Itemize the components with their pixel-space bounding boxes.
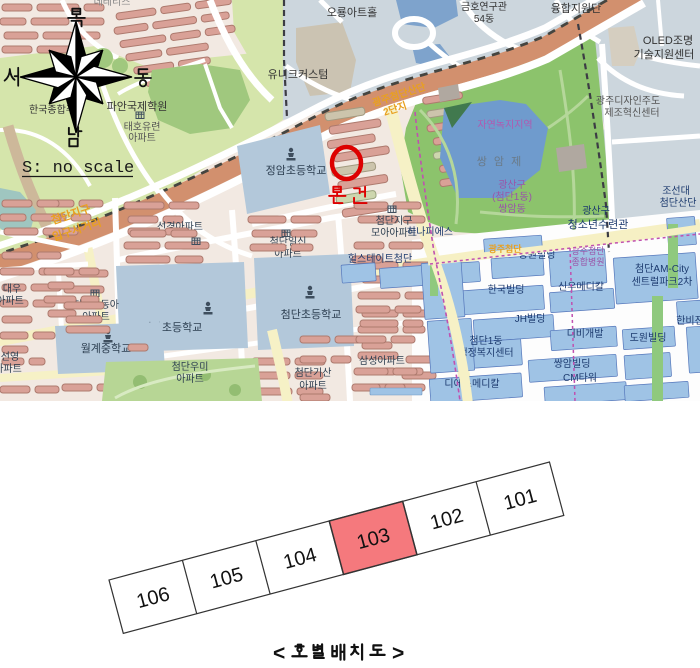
- svg-text:융합지원단: 융합지원단: [551, 2, 602, 15]
- svg-text:아파트: 아파트: [0, 295, 24, 307]
- svg-text:종합병원: 종합병원: [571, 257, 604, 267]
- svg-text:광산구: 광산구: [582, 205, 610, 217]
- svg-text:선영: 선영: [1, 351, 19, 363]
- svg-text:아파트: 아파트: [299, 380, 327, 392]
- svg-text:첨단지구: 첨단지구: [376, 215, 413, 227]
- svg-text:첨단초등학교: 첨단초등학교: [281, 308, 342, 321]
- svg-text:광주첨단: 광주첨단: [488, 243, 522, 254]
- svg-text:CM타워: CM타워: [563, 371, 597, 384]
- svg-text:오룡아트홀: 오룡아트홀: [327, 6, 378, 19]
- svg-text:광산구: 광산구: [498, 179, 526, 191]
- svg-text:첨단AM-City: 첨단AM-City: [635, 263, 689, 275]
- svg-text:도원빌딩: 도원빌딩: [630, 332, 667, 344]
- svg-text:S: no scale: S: no scale: [22, 159, 134, 178]
- svg-text:>: >: [392, 642, 404, 665]
- svg-text:아파트: 아파트: [0, 363, 22, 375]
- svg-text:(첨단1동): (첨단1동): [492, 191, 532, 203]
- svg-text:OLED조명: OLED조명: [643, 34, 693, 47]
- svg-text:한비젼: 한비젼: [676, 315, 700, 327]
- svg-text:첨단기산: 첨단기산: [295, 367, 332, 379]
- svg-text:JH빌딩: JH빌딩: [515, 313, 546, 325]
- svg-text:힐스테이트첨단: 힐스테이트첨단: [348, 252, 412, 265]
- svg-text:쌍 암 제: 쌍 암 제: [477, 155, 523, 168]
- svg-text:신우메디칼: 신우메디칼: [558, 280, 604, 293]
- svg-text:디에스메디칼: 디에스메디칼: [444, 377, 499, 390]
- svg-text:대우: 대우: [3, 283, 21, 295]
- svg-text:쌍암빌딩: 쌍암빌딩: [554, 358, 591, 370]
- svg-text:삼성아파트: 삼성아파트: [359, 355, 405, 367]
- svg-text:유니크커스텀: 유니크커스텀: [268, 68, 329, 81]
- svg-text:쌍암동: 쌍암동: [498, 203, 526, 215]
- svg-text:제조혁신센터: 제조혁신센터: [604, 107, 659, 119]
- svg-text:데레리즈: 데레리즈: [94, 0, 131, 8]
- svg-text:청소년수련관: 청소년수련관: [568, 218, 629, 231]
- svg-text:센트럴파크2차: 센트럴파크2차: [632, 275, 693, 288]
- svg-text:기술지원센터: 기술지원센터: [634, 48, 695, 61]
- svg-text:한국빌딩: 한국빌딩: [488, 284, 525, 296]
- svg-text:금호연구관: 금호연구관: [461, 1, 507, 13]
- svg-text:첨단우미: 첨단우미: [172, 361, 209, 373]
- svg-text:광주디자인주도: 광주디자인주도: [596, 95, 660, 107]
- svg-text:조선대: 조선대: [662, 185, 690, 197]
- svg-text:아파트: 아파트: [128, 132, 156, 144]
- svg-text:첨단1동: 첨단1동: [469, 335, 502, 347]
- svg-text:54동: 54동: [474, 13, 494, 25]
- svg-text:정암초등학교: 정암초등학교: [266, 164, 327, 177]
- svg-text:첨단산단: 첨단산단: [660, 197, 697, 209]
- svg-text:아파트: 아파트: [176, 373, 204, 385]
- svg-text:태호유련: 태호유련: [124, 121, 161, 133]
- svg-text:월계중학교: 월계중학교: [81, 342, 132, 355]
- svg-text:<: <: [273, 642, 285, 665]
- svg-text:자연녹지지역: 자연녹지지역: [477, 119, 532, 131]
- svg-text:행정복지센터: 행정복지센터: [458, 347, 513, 359]
- svg-text:파안국제학원: 파안국제학원: [107, 100, 168, 113]
